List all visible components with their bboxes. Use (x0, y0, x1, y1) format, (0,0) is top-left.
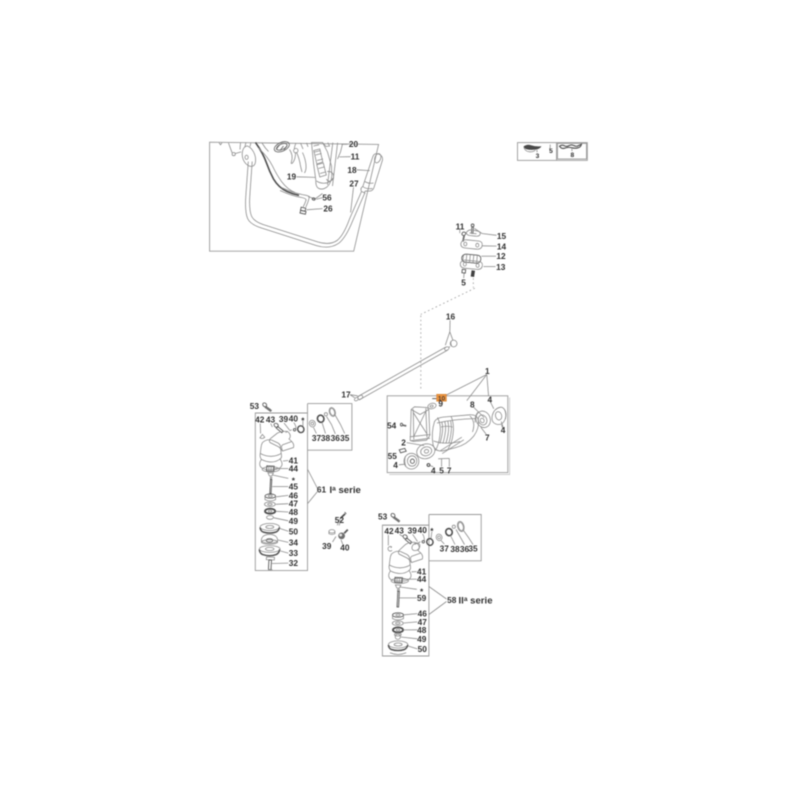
svg-text:1: 1 (485, 366, 490, 376)
svg-text:20: 20 (349, 139, 359, 149)
svg-text:39: 39 (408, 525, 418, 535)
svg-text:17: 17 (341, 390, 351, 400)
svg-text:49: 49 (289, 516, 299, 526)
svg-text:50: 50 (418, 644, 428, 654)
svg-text:56: 56 (322, 193, 332, 203)
svg-text:13: 13 (496, 262, 506, 272)
svg-text:53: 53 (378, 512, 388, 522)
svg-text:8: 8 (470, 399, 475, 409)
svg-text:43: 43 (266, 415, 276, 425)
svg-text:34: 34 (289, 537, 299, 547)
svg-text:11: 11 (351, 152, 360, 162)
svg-text:12: 12 (496, 251, 506, 261)
svg-text:50: 50 (289, 526, 299, 536)
svg-text:4: 4 (431, 465, 436, 475)
svg-text:15: 15 (497, 231, 507, 241)
svg-text:5: 5 (549, 148, 553, 155)
svg-text:38: 38 (450, 544, 460, 554)
svg-text:33: 33 (289, 548, 299, 558)
svg-text:38: 38 (321, 433, 331, 443)
svg-text:35: 35 (468, 543, 478, 553)
svg-text:39: 39 (279, 414, 289, 424)
svg-text:19: 19 (287, 172, 297, 182)
svg-text:53: 53 (250, 401, 260, 411)
svg-text:52: 52 (335, 515, 345, 525)
svg-text:59: 59 (417, 593, 427, 603)
svg-text:7: 7 (447, 466, 452, 476)
svg-text:9: 9 (438, 399, 443, 409)
svg-text:39: 39 (322, 541, 332, 551)
svg-text:42: 42 (384, 526, 394, 536)
svg-text:11: 11 (456, 222, 465, 232)
svg-text:40: 40 (418, 525, 428, 535)
svg-text:35: 35 (340, 433, 350, 443)
svg-text:37: 37 (440, 543, 450, 553)
svg-text:IIa serie: IIa serie (459, 595, 493, 606)
svg-text:3: 3 (536, 153, 540, 160)
svg-text:61: 61 (317, 485, 327, 495)
svg-text:14: 14 (497, 241, 507, 251)
svg-text:32: 32 (289, 558, 299, 568)
svg-text:7: 7 (485, 432, 490, 442)
svg-text:44: 44 (289, 464, 299, 474)
svg-text:8: 8 (570, 152, 574, 159)
svg-text:42: 42 (255, 415, 265, 425)
svg-text:44: 44 (417, 574, 427, 584)
svg-text:58: 58 (447, 595, 457, 605)
svg-text:4: 4 (501, 425, 506, 435)
svg-text:2: 2 (401, 438, 406, 448)
svg-text:40: 40 (340, 543, 350, 553)
svg-text:16: 16 (446, 312, 456, 322)
svg-text:26: 26 (323, 204, 333, 214)
svg-text:43: 43 (395, 525, 405, 535)
svg-text:18: 18 (347, 165, 357, 175)
svg-text:5: 5 (461, 277, 466, 287)
svg-text:27: 27 (349, 179, 359, 189)
svg-text:4: 4 (487, 394, 492, 404)
svg-text:49: 49 (417, 634, 427, 644)
svg-text:4: 4 (393, 460, 398, 470)
svg-text:36: 36 (331, 433, 341, 443)
svg-text:40: 40 (289, 414, 299, 424)
svg-text:5: 5 (439, 466, 444, 476)
svg-text:54: 54 (387, 420, 397, 430)
